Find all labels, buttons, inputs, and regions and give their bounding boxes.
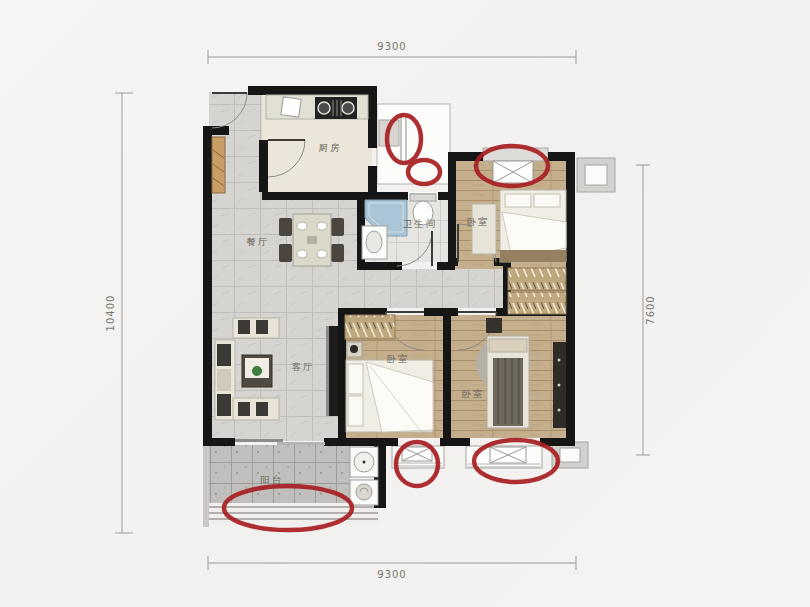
floor-plan-canvas: 9300 9300 10400 7600 [0,0,810,607]
wardrobe-top-right [508,292,566,314]
dresser [553,342,566,428]
washing-machine [350,447,378,477]
dimension-left-value: 10400 [105,295,116,332]
dimension-bottom-value: 9300 [377,569,406,580]
kitchen-sink [281,97,301,117]
nightstand [486,318,502,333]
dimension-bottom: 9300 [208,556,576,580]
room-label-dining: 餐厅 [247,236,270,247]
dimension-top: 9300 [208,41,576,64]
nightstand [347,342,362,357]
wardrobe-middle [345,315,395,339]
laundry-sink [350,480,378,505]
dimension-right-value: 7600 [645,295,656,324]
room-label-living: 客厅 [292,361,315,372]
room-label-bedroom-bottom-right: 卧室 [462,388,485,399]
dimension-right: 7600 [636,165,656,455]
tv-console [326,326,338,416]
bed-middle [346,360,433,432]
room-label-balcony: 阳台 [261,474,284,485]
dining-chair [279,244,292,262]
dimension-top-value: 9300 [377,41,406,52]
room-label-bedroom-top-right: 卧室 [467,216,490,227]
dining-chair [331,218,344,236]
kitchen-furniture [266,95,368,119]
dining-chair [279,218,292,236]
room-label-kitchen: 厨房 [319,142,342,153]
bed-top-right [500,190,566,262]
wardrobe-top-right [508,268,566,290]
bathroom-sink [362,226,387,259]
floor-plan-svg: 9300 9300 10400 7600 [0,0,810,607]
room-label-bathroom: 卫生间 [403,218,438,229]
dimension-left: 10400 [105,93,133,533]
bed-bottom-right [487,336,529,428]
floor-hallway [357,269,505,308]
dining-chair [331,244,344,262]
balcony-furniture [350,447,378,505]
room-label-bedroom-middle: 卧室 [387,353,410,364]
coffee-table [242,355,272,387]
stove [315,97,357,119]
entry-furniture [212,137,225,193]
ac-platform-top-right [577,158,615,192]
bench [472,204,496,254]
balcony-side-rail [203,445,209,527]
bedroom-bottom-right-bay-window [466,446,542,468]
